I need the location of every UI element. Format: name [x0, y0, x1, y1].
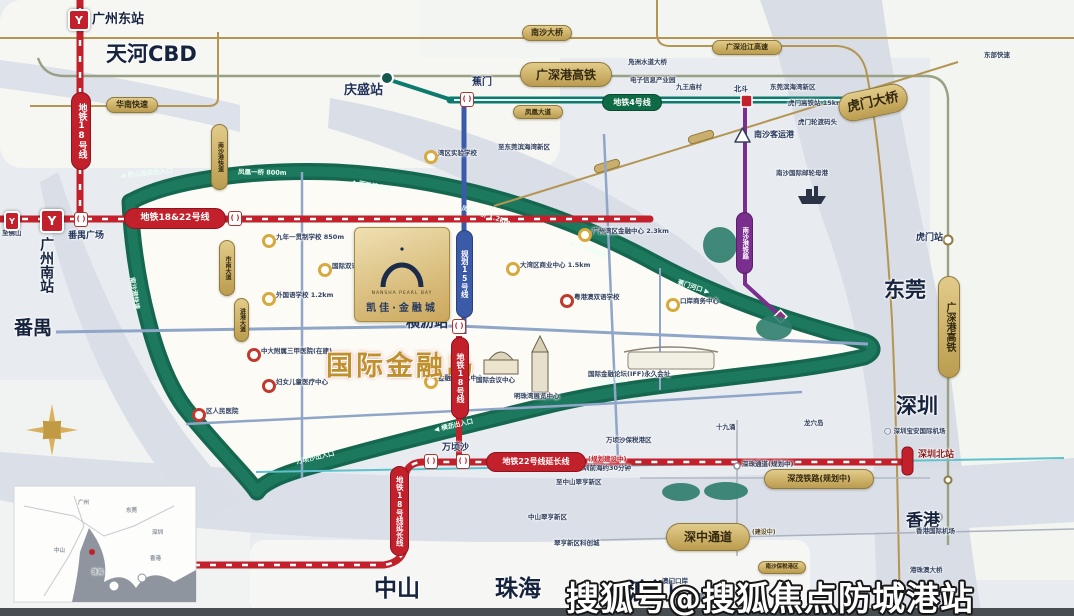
hengli-bracket-icon: ( ): [452, 319, 466, 334]
ring-label-2: 凤凰一桥 800m: [238, 166, 287, 177]
station-label-qingsheng: 庆盛站: [344, 84, 383, 99]
school-poi-icon: [560, 294, 574, 308]
station-label-panyu-square: 番禺广场: [68, 231, 104, 241]
station-label-beidou: 北斗: [734, 85, 748, 93]
road-capsule-huanan-expressway: 华南快速: [106, 97, 158, 113]
road-note-shenzhong: (建设中): [752, 530, 776, 537]
note: 东部快速: [984, 52, 1010, 59]
humen-station-dot: [944, 236, 953, 245]
bend-bracket-icon: ( ): [424, 454, 438, 469]
note: 万顷沙保税港区: [606, 437, 652, 444]
hospital-poi-icon: [262, 379, 276, 393]
city-label-zhongshan: 中山: [374, 576, 420, 602]
poi-label: 妇女儿童医疗中心: [276, 379, 328, 386]
line-capsule-nansha-port-rail: 南沙港铁路: [736, 212, 753, 274]
arch-logo-icon: [373, 239, 431, 289]
note: 九王庙村: [676, 84, 702, 91]
poi-label: 口岸商务中心: [680, 298, 719, 305]
road-capsule-shinan-avenue: 市南大道: [219, 240, 235, 296]
transit-map: 国际金融岛 NANSHA PEARL BAY 凯佳·金融城 搜狐号@搜狐焦点防城…: [0, 0, 1074, 616]
school-poi-icon: [262, 292, 276, 306]
road-capsule-nansha-port-expressway: 南沙港快速: [211, 124, 228, 190]
note: 凫洲水道大桥: [628, 59, 667, 66]
project-subtitle: NANSHA PEARL BAY: [372, 291, 433, 296]
note: 翠亨新区科创城: [554, 540, 600, 547]
landmark-label-tower: 明珠湾展览中心: [514, 393, 560, 400]
city-label-guangzhou-east: 广州东站: [92, 13, 144, 28]
note: 十九涌: [716, 424, 736, 431]
business-poi-icon: [666, 298, 680, 312]
poi-label: 区人民医院: [206, 408, 239, 415]
school-poi-icon: [424, 150, 438, 164]
hospital-poi-icon: [247, 348, 261, 362]
note: 龙穴岛: [804, 420, 824, 427]
inset-label-zhuhai: 珠海: [92, 570, 103, 576]
note: 至佛山: [2, 230, 22, 237]
line-capsule-18-22: 地铁18&22号线: [124, 208, 226, 229]
inset-label-hongkong: 香港: [150, 556, 161, 562]
road-capsule-gsg-hsr: 广深港高铁: [520, 62, 612, 87]
interchange-bracket-icon: ( ): [228, 211, 242, 226]
jiaomen-bracket-icon: ( ): [460, 92, 474, 107]
kindergarten-poi-icon: [318, 263, 332, 277]
poi-label: 粤港澳双语学校: [574, 294, 620, 301]
station-label-nansha-port: 南沙客运港: [754, 130, 794, 139]
guangzhou-east-metro-icon: Y: [68, 9, 90, 31]
poi-label: 外国语学校 1.2km: [276, 292, 333, 299]
city-label-shenzhen: 深圳: [896, 394, 938, 418]
landmark-label-dome: 国际会议中心: [476, 377, 515, 384]
line-capsule-22-extension: 地铁22号线延长线: [486, 452, 586, 472]
inset-label-guangzhou: 广州: [78, 500, 89, 506]
poi-label: 湾区实验学校: [438, 150, 477, 157]
watermark: 搜狐号@搜狐焦点防城港站: [566, 572, 974, 616]
school-poi-icon: [262, 234, 276, 248]
city-label-guangzhou-south: 广州南站: [38, 237, 54, 293]
road-capsule-shenmao-railway: 深茂铁路(规划中): [764, 469, 874, 489]
station-label-shenzhen-north: 深圳北站: [918, 450, 954, 460]
wanqingsha-bracket-icon: ( ): [456, 454, 470, 469]
road-capsule-jingang-avenue: 进港大道: [234, 298, 249, 342]
interchange-bracket-icon: ( ): [74, 212, 88, 227]
line-capsule-18-south: 地铁18号线: [451, 337, 469, 419]
city-label-tianhe-cbd: 天河CBD: [106, 42, 197, 66]
note: 虎门高铁站 15km: [788, 100, 843, 107]
mall-poi-icon: [506, 262, 520, 276]
line-capsule-18-extension: 地铁18号线延长线: [390, 466, 409, 556]
beidou-station-box: [741, 95, 752, 107]
note: 电子信息产业园: [630, 77, 676, 84]
road-capsule-gsg-hsr-vertical: 广深港高铁: [938, 276, 960, 378]
poi-label: 九年一贯制学校 850m: [276, 234, 344, 241]
road-capsule-shenzhong-corridor: 深中通道: [666, 523, 750, 551]
note: 东莞滨海湾新区: [770, 84, 816, 91]
station-label-humen: 虎门站: [916, 233, 943, 243]
road-capsule-nansha-bridge: 南沙大桥: [522, 25, 572, 41]
finance-poi-icon: [578, 228, 592, 242]
line-terminal-cap: [902, 447, 913, 475]
line-capsule-18-north: 地铁18号线: [71, 92, 91, 170]
inset-label-shenzhen: 深圳: [152, 530, 163, 536]
poi-label: 大湾区商业中心 1.5km: [520, 262, 590, 269]
city-label-zhuhai: 珠海: [495, 576, 541, 602]
line-note-22-extension: (规划建设中): [588, 456, 626, 463]
note: 香港国际机场: [916, 528, 955, 535]
station-label-jiaomen: 蕉门: [472, 77, 492, 89]
poi-label: 中大附属三甲医院(在建): [261, 348, 332, 355]
poi-label: 广州湾区金融中心 2.3km: [592, 228, 669, 235]
station-label-wanqingsha: 万顷沙: [442, 443, 469, 453]
city-label-dongguan: 东莞: [884, 278, 926, 302]
line-capsule-15-planned: 规划15号线: [456, 230, 473, 318]
hospital-poi-icon: [192, 408, 206, 422]
note: 中山翠亨新区: [528, 514, 567, 521]
line-capsule-4: 地铁4号线: [602, 94, 662, 111]
note: 至中山翠亨新区: [556, 479, 602, 486]
note: ◯ 深圳宝安国际机场: [884, 428, 946, 435]
inset-map: [14, 486, 196, 602]
edge-metro-icon: Y: [4, 211, 20, 231]
note: 至东莞滨海湾新区: [498, 144, 550, 151]
panyu-square-metro-icon: Y: [40, 209, 64, 233]
landmark-label-cruise-port: 南沙国际邮轮母港: [776, 170, 828, 177]
road-capsule-yanjiang-expressway: 广深沿江高速: [712, 40, 782, 55]
inset-label-zhongshan: 中山: [54, 548, 65, 554]
inset-project-marker: [89, 549, 95, 555]
project-name: 凯佳·金融城: [366, 299, 438, 314]
city-label-panyu: 番禺: [14, 318, 52, 340]
road-capsule-fenghuang-avenue: 凤凰大道: [513, 105, 563, 119]
note: 深珠通道(规划中): [742, 461, 793, 468]
note: 虎门轮渡码头: [798, 119, 837, 126]
project-logo-card: NANSHA PEARL BAY 凯佳·金融城: [354, 227, 450, 322]
inset-label-dongguan: 东莞: [126, 508, 137, 514]
